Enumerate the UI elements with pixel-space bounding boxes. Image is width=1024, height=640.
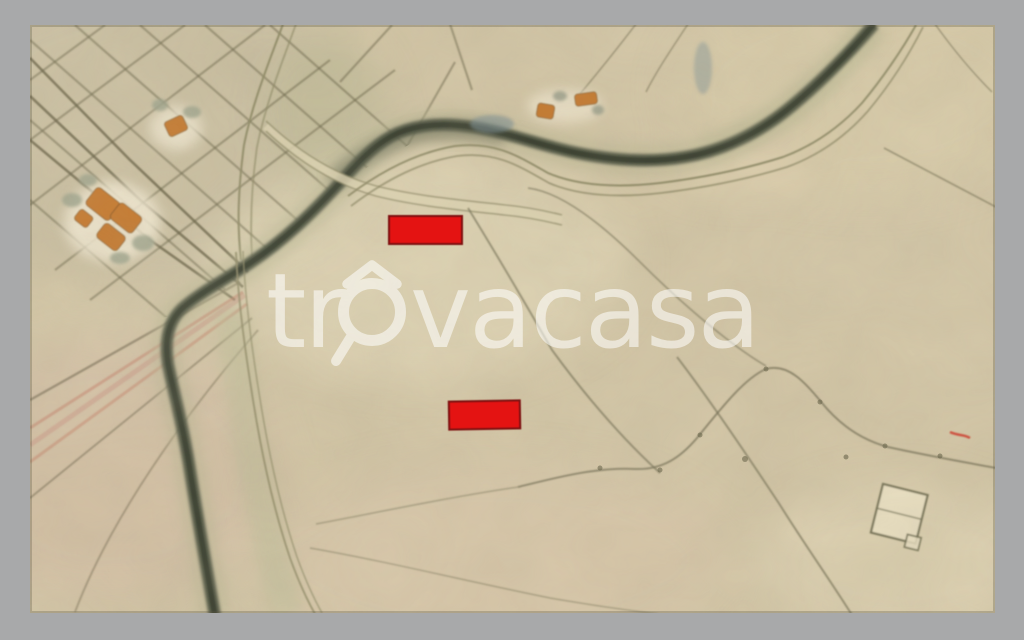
marker-2[interactable] (448, 399, 522, 430)
map-viewport: tr vacasa (0, 0, 1024, 640)
map-frame: tr vacasa (30, 25, 995, 613)
marker-1[interactable] (388, 215, 463, 245)
trovacasa-watermark: tr vacasa (266, 252, 759, 372)
watermark-text-right: vacasa (410, 252, 759, 372)
cadastral-map: tr vacasa (30, 25, 995, 613)
